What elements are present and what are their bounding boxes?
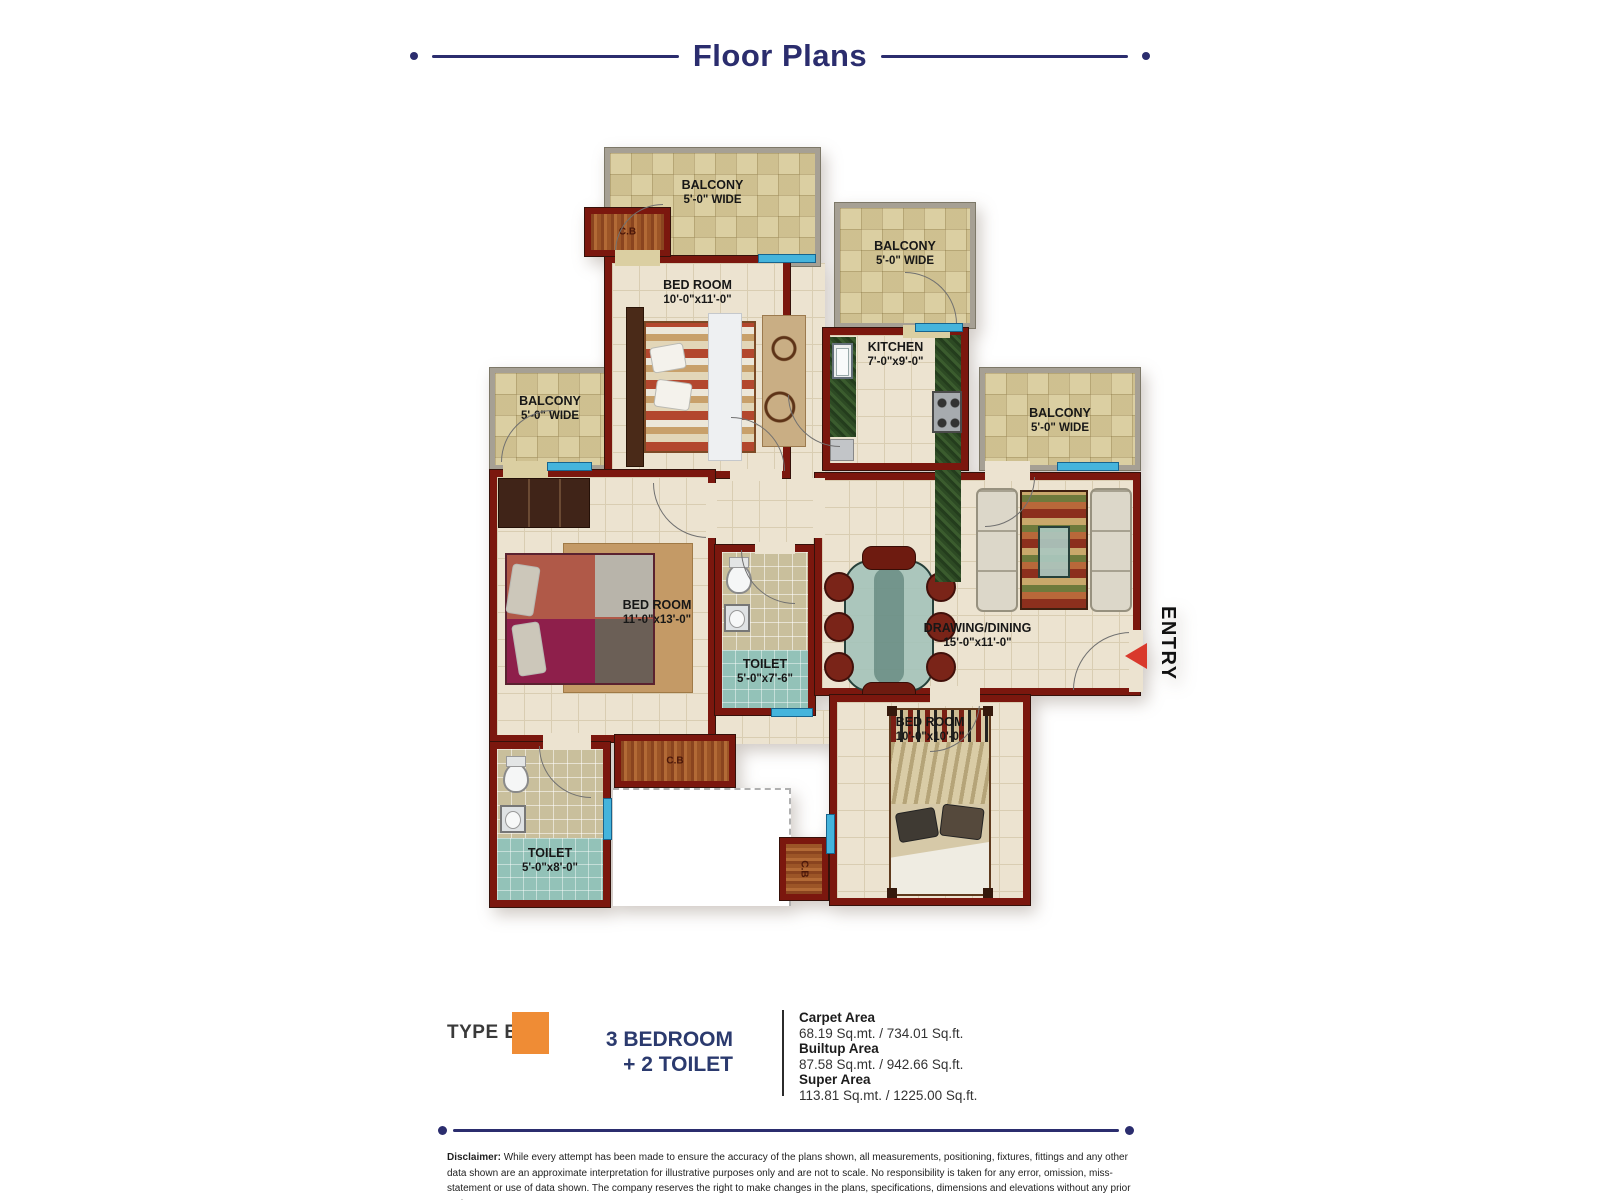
room-kitchen: KITCHEN7'-0"x9'-0"	[823, 328, 968, 470]
area-label: Carpet Area	[799, 1010, 1089, 1025]
headboard	[626, 307, 644, 467]
blanket	[891, 742, 989, 804]
config-line: + 2 TOILET	[540, 1053, 733, 1078]
window	[1057, 462, 1119, 471]
room-label: KITCHEN7'-0"x9'-0"	[830, 339, 961, 370]
chair	[824, 572, 854, 602]
room-label: BALCONY5'-0" WIDE	[840, 238, 970, 269]
wash-basin	[500, 805, 526, 833]
dining-table-end	[862, 546, 916, 570]
header-dot-right	[1142, 52, 1150, 60]
floor-plan: BALCONY5'-0" WIDE BALCONY5'-0" WIDE BALC…	[485, 138, 1215, 913]
area-details: Carpet Area 68.19 Sq.mt. / 734.01 Sq.ft.…	[799, 1010, 1089, 1104]
window	[603, 798, 612, 840]
room-balcony-right: BALCONY5'-0" WIDE	[980, 368, 1140, 470]
room-label: TOILET5'-0"x7'-6"	[722, 656, 808, 687]
area-value: 68.19 Sq.mt. / 734.01 Sq.ft.	[799, 1026, 1089, 1041]
window	[826, 814, 835, 854]
room-label: DRAWING/DINING15'-0"x11'-0"	[822, 620, 1133, 651]
blanket	[595, 619, 653, 683]
pillow	[653, 379, 693, 412]
config-line: 3 BEDROOM	[540, 1028, 733, 1053]
disclaimer-label: Disclaimer:	[447, 1152, 501, 1163]
header-dot-left	[410, 52, 418, 60]
door-opening	[543, 733, 591, 750]
window	[915, 323, 963, 332]
door-opening	[615, 250, 660, 266]
header-rule-left	[432, 55, 679, 58]
pillow	[511, 621, 547, 677]
unit-configuration: 3 BEDROOM + 2 TOILET	[540, 1028, 733, 1078]
chair	[926, 652, 956, 682]
footer-dot-left	[438, 1126, 447, 1135]
kitchen-counter-extension	[935, 470, 961, 582]
door-opening	[503, 461, 548, 478]
unit-type-label: TYPE B	[447, 1022, 519, 1044]
cupboard-label: C.B	[621, 756, 729, 767]
sofa	[1090, 488, 1132, 612]
door-opening	[706, 483, 717, 538]
wall-cupboard: C.B	[615, 735, 735, 787]
room-label: BALCONY5'-0" WIDE	[610, 177, 815, 208]
stove	[932, 391, 962, 433]
room-label: BED ROOM10'-0"x11'-0"	[612, 277, 783, 308]
disclaimer-body: While every attempt has been made to ens…	[447, 1152, 1131, 1200]
door-opening	[730, 469, 782, 481]
header-rule-right	[881, 55, 1128, 58]
room-label: TOILET5'-0"x8'-0"	[497, 845, 603, 876]
bed-post	[983, 888, 993, 898]
door-opening	[930, 686, 980, 706]
center-table	[1038, 526, 1070, 578]
toilet-wc	[503, 763, 529, 793]
area-label: Builtup Area	[799, 1041, 1089, 1056]
wardrobe	[498, 478, 590, 528]
wash-basin	[724, 604, 750, 632]
pillow	[939, 804, 985, 841]
footer-rule-line	[453, 1129, 1119, 1132]
pillow	[505, 563, 540, 617]
page-title: Floor Plans	[693, 38, 867, 74]
door-opening	[755, 542, 795, 554]
window	[758, 254, 816, 263]
area-value: 87.58 Sq.mt. / 942.66 Sq.ft.	[799, 1057, 1089, 1072]
bed-sheet	[891, 842, 989, 894]
pillow	[649, 342, 687, 374]
summary-divider	[782, 1010, 784, 1096]
door-opening	[985, 461, 1030, 481]
room-label: BALCONY5'-0" WIDE	[985, 405, 1135, 436]
footer-rule	[438, 1126, 1134, 1135]
open-cutout-area	[613, 788, 791, 906]
cupboard-label: C.B	[799, 851, 810, 887]
footer-dot-right	[1125, 1126, 1134, 1135]
window	[771, 708, 813, 717]
wall-cupboard: C.B	[780, 838, 828, 900]
area-label: Super Area	[799, 1072, 1089, 1087]
page: Floor Plans BALCONY5'-0" WIDE BALCONY5'-…	[0, 0, 1600, 1200]
chair	[824, 652, 854, 682]
door-opening	[813, 478, 825, 538]
page-header: Floor Plans	[410, 30, 1150, 82]
disclaimer-text: Disclaimer: While every attempt has been…	[447, 1150, 1135, 1200]
bed-post	[887, 888, 897, 898]
area-value: 113.81 Sq.mt. / 1225.00 Sq.ft.	[799, 1088, 1089, 1103]
window	[547, 462, 592, 471]
pillow	[895, 807, 940, 843]
entry-label: ENTRY	[1156, 606, 1179, 681]
room-label: BED ROOM11'-0"x13'-0"	[602, 597, 712, 628]
entry-arrow-icon	[1125, 643, 1147, 669]
